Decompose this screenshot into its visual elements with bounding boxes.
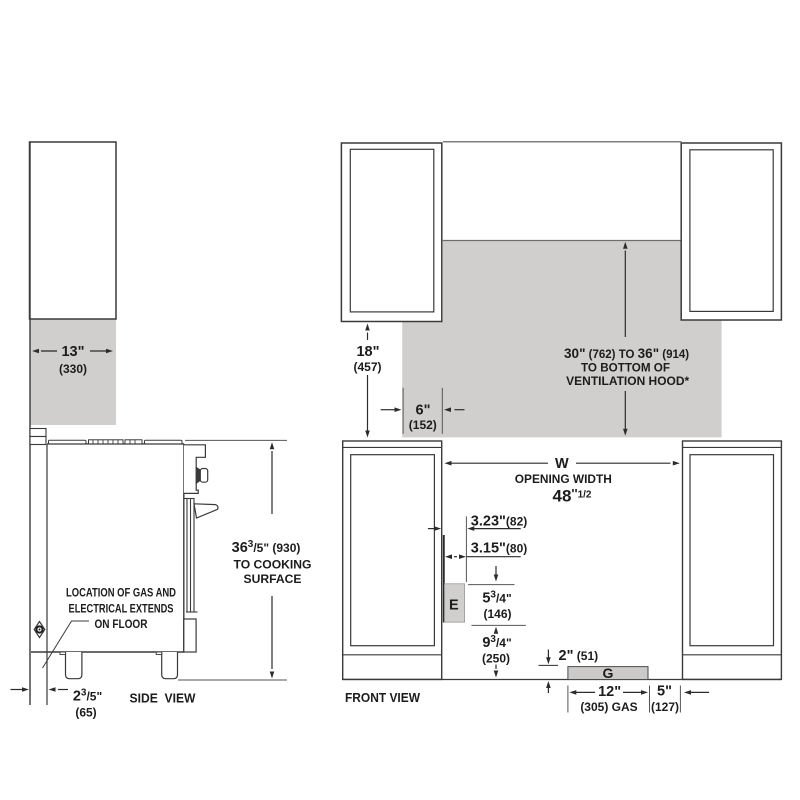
svg-text:ON FLOOR: ON FLOOR	[95, 619, 149, 631]
svg-text:3.15"(80): 3.15"(80)	[471, 541, 527, 557]
svg-text:23/5": 23/5"	[73, 688, 102, 705]
svg-text:12": 12"	[598, 684, 621, 700]
svg-text:(146): (146)	[483, 607, 511, 621]
svg-text:(250): (250)	[482, 652, 510, 666]
svg-text:(330): (330)	[59, 362, 87, 376]
svg-text:6": 6"	[416, 403, 431, 419]
svg-text:SURFACE: SURFACE	[244, 574, 302, 586]
svg-text:(457): (457)	[353, 360, 381, 374]
svg-text:G: G	[603, 665, 614, 681]
svg-text:LOCATION OF GAS AND: LOCATION OF GAS AND	[66, 588, 176, 600]
svg-text:13": 13"	[61, 344, 84, 360]
svg-text:(127): (127)	[651, 700, 679, 714]
svg-text:ELECTRICAL EXTENDS: ELECTRICAL EXTENDS	[69, 604, 174, 616]
svg-text:5": 5"	[657, 684, 672, 700]
svg-text:(65): (65)	[75, 706, 96, 720]
svg-text:VENTILATION HOOD*: VENTILATION HOOD*	[566, 376, 690, 388]
svg-text:FRONT VIEW: FRONT VIEW	[345, 690, 421, 705]
svg-text:(152): (152)	[409, 418, 437, 432]
svg-text:SIDE VIEW: SIDE VIEW	[130, 691, 197, 706]
svg-text:W: W	[555, 456, 569, 472]
svg-text:93/4": 93/4"	[482, 634, 511, 651]
svg-text:(305) GAS: (305) GAS	[580, 700, 637, 714]
svg-text:3.23"(82): 3.23"(82)	[471, 514, 527, 530]
svg-text:18": 18"	[356, 344, 379, 360]
svg-text:OPENING WIDTH: OPENING WIDTH	[515, 474, 612, 486]
svg-text:TO COOKING: TO COOKING	[234, 560, 312, 572]
svg-text:E: E	[449, 598, 459, 614]
svg-text:53/4": 53/4"	[482, 590, 511, 607]
svg-text:30" (762) TO 36" (914): 30" (762) TO 36" (914)	[564, 346, 689, 361]
svg-text:363/5" (930): 363/5" (930)	[232, 539, 301, 556]
svg-text:2" (51): 2" (51)	[559, 648, 599, 664]
svg-text:TO BOTTOM OF: TO BOTTOM OF	[581, 363, 670, 375]
